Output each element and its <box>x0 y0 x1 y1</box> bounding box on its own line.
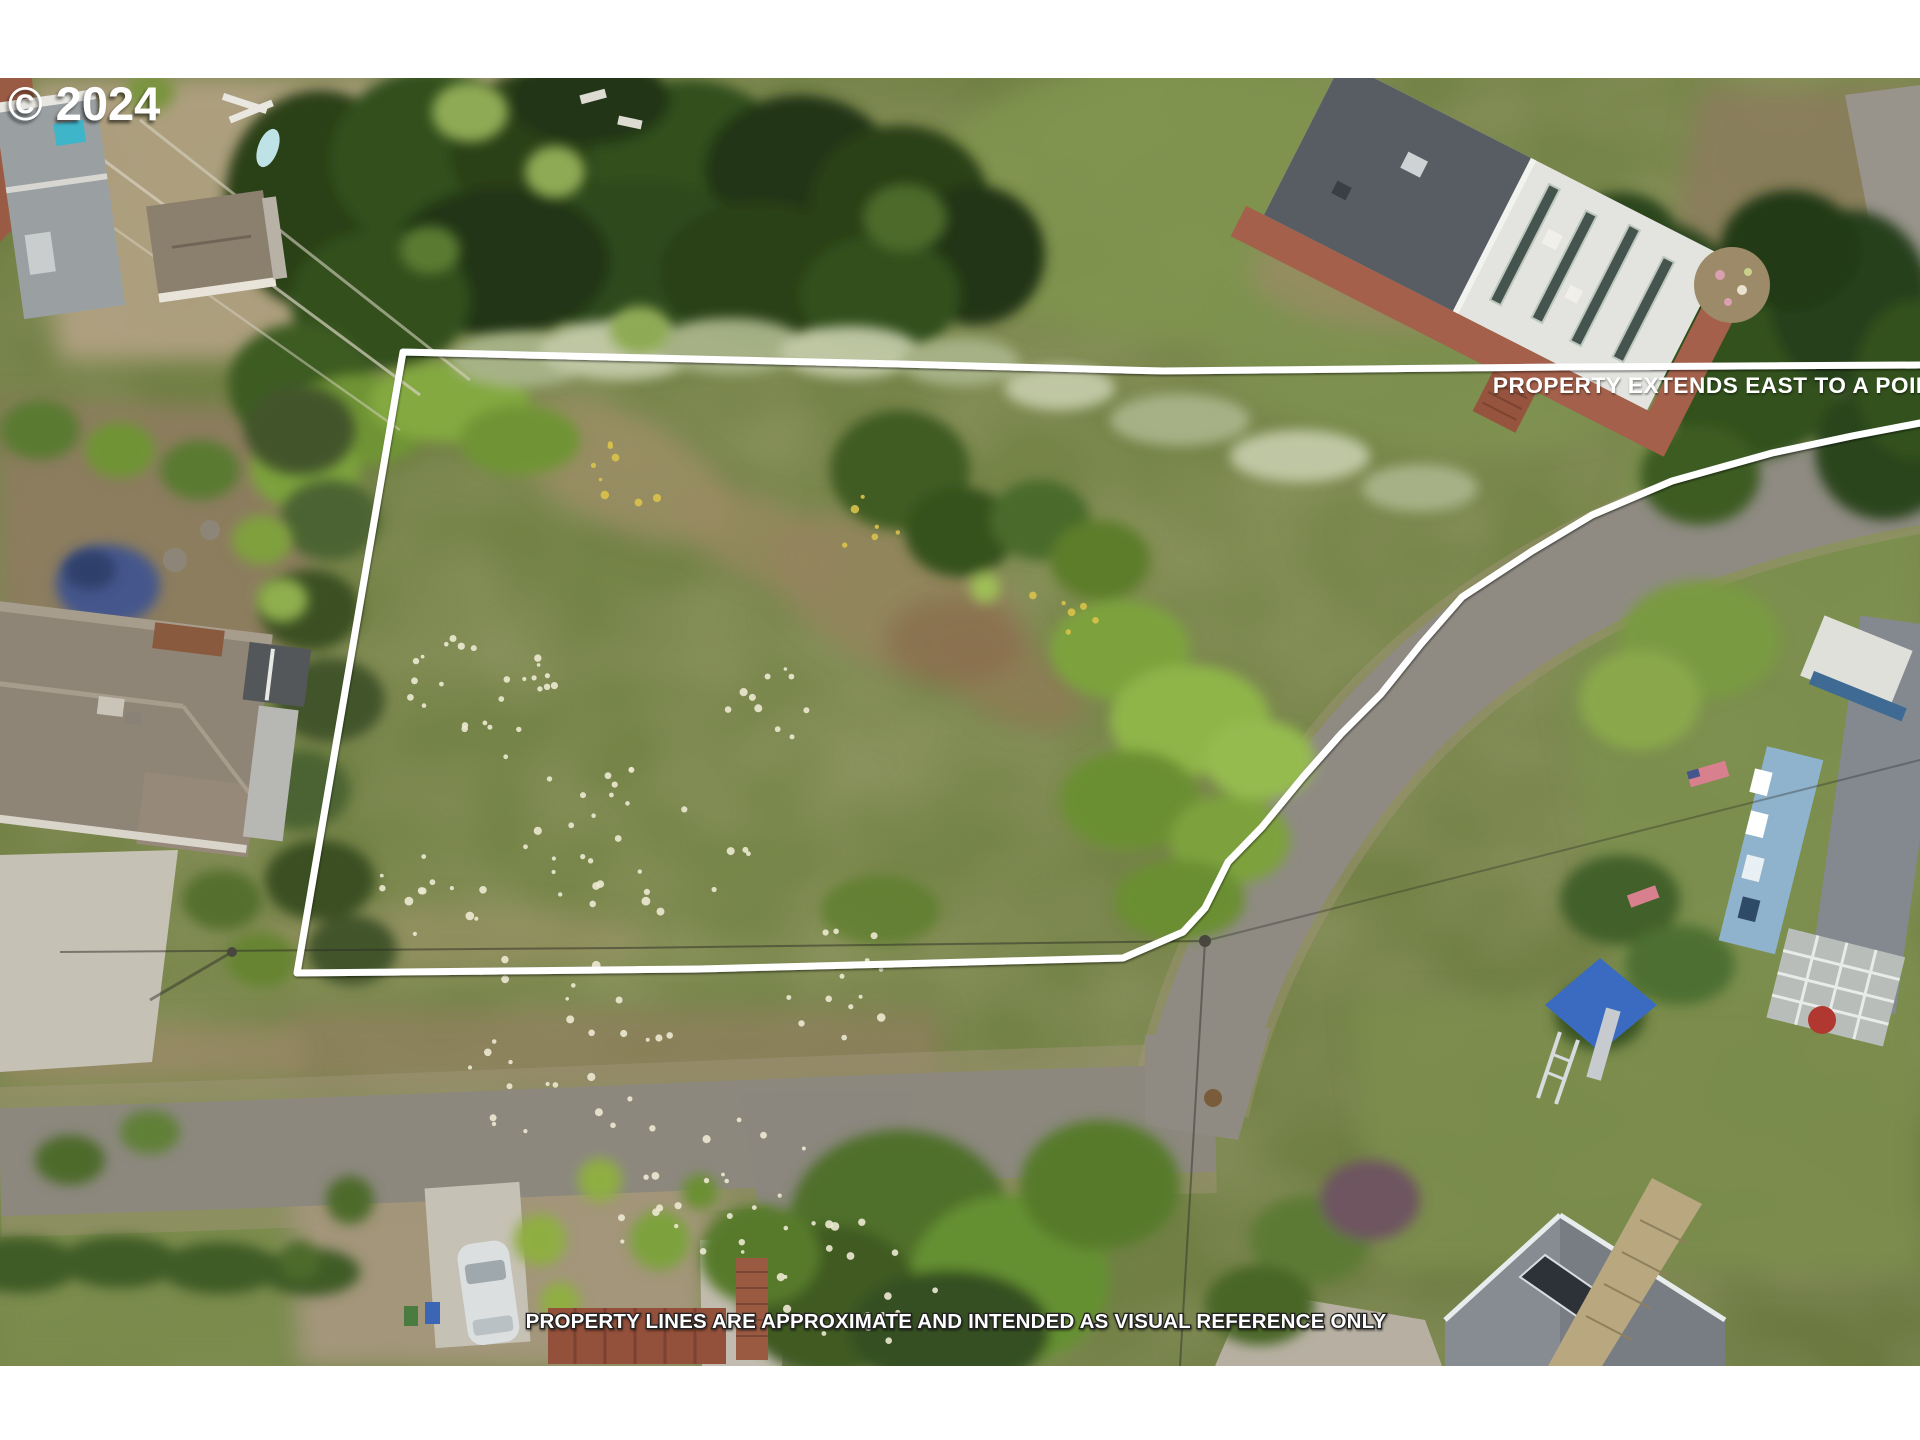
trash-bin <box>404 1306 418 1326</box>
utility-pole-west <box>227 947 237 957</box>
utility-pole <box>1199 935 1211 947</box>
photo-content <box>0 53 1920 1390</box>
extends-east-annotation: PROPERTY EXTENDS EAST TO A POINT <box>1493 373 1920 398</box>
letterbox-bottom <box>0 1366 1920 1440</box>
flower-bed-top-right <box>1694 247 1770 323</box>
staircase <box>736 1258 768 1360</box>
recycle-bin <box>425 1302 440 1324</box>
manhole <box>1204 1089 1222 1107</box>
copyright-watermark: © 2024 <box>8 77 160 130</box>
disclaimer-annotation: PROPERTY LINES ARE APPROXIMATE AND INTEN… <box>526 1310 1387 1333</box>
house-left <box>0 598 312 862</box>
aerial-property-photo: © 2024 PROPERTY EXTENDS EAST TO A POINT … <box>0 0 1920 1440</box>
letterbox-top <box>0 0 1920 78</box>
shed-top-left <box>146 188 288 302</box>
